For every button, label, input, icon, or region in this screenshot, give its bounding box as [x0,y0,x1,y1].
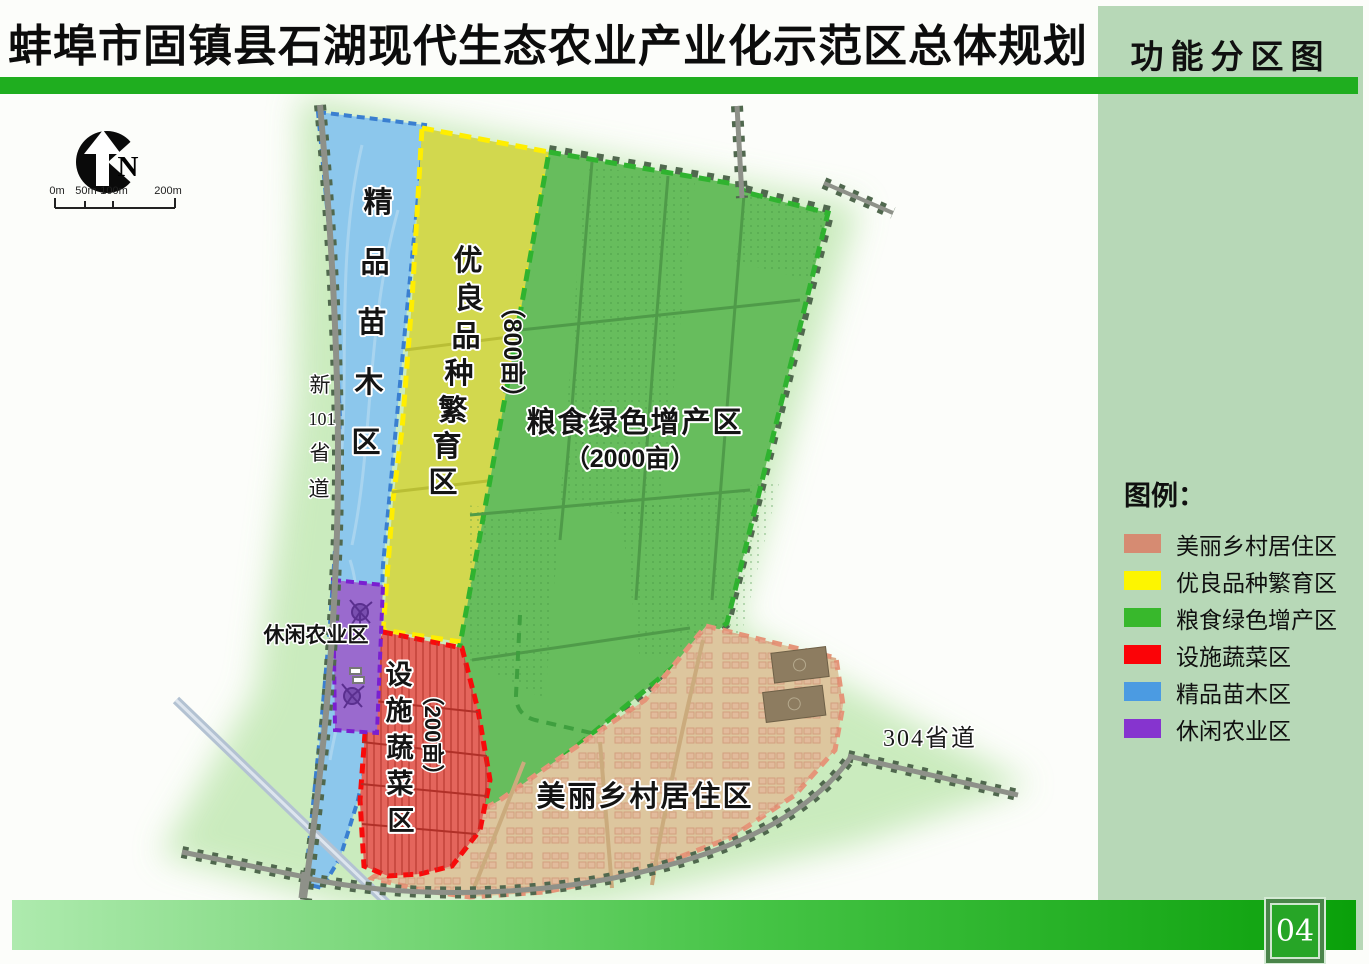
legend-swatch-grain [1124,608,1161,627]
scale-bar: 0m 50m 100m 200m [49,185,181,208]
footer-green-bar [12,900,1356,950]
legend-swatch-vegetable [1124,645,1161,664]
legend-item-seed: 优良品种繁育区 [1124,562,1337,599]
label-road101-2: 101 [309,409,336,429]
legend-label-vegetable: 设施蔬菜区 [1176,638,1291,672]
label-nursery-3: 苗 [357,306,386,339]
legend-item-village: 美丽乡村居住区 [1124,525,1337,562]
planning-poster-page: 蚌埠市固镇县石湖现代生态农业产业化示范区总体规划 功能分区图 图例： 美丽乡村居… [0,0,1369,964]
header-green-bar [0,77,1358,94]
scale-tick-0: 0m [49,185,64,197]
zone-leisure [333,580,383,733]
label-nursery-2: 品 [360,247,389,279]
legend-swatch-seed [1124,571,1161,590]
legend-label-grain: 粮食绿色增产区 [1176,601,1337,635]
map-sheet-title: 功能分区图 [1098,30,1363,78]
legend-label-village: 美丽乡村居住区 [1176,527,1337,561]
page-number: 04 [1266,899,1324,963]
label-grain-area: （2000亩） [565,444,696,473]
page-title: 蚌埠市固镇县石湖现代生态农业产业化示范区总体规划 [0,10,1096,74]
label-nursery-1: 精 [363,186,392,219]
label-road304: 304省道 [883,725,977,752]
label-seed-1: 优 [453,244,482,277]
compass-n-label: N [118,151,139,183]
label-leisure: 休闲农业区 [263,623,369,647]
legend-item-vegetable: 设施蔬菜区 [1124,636,1337,673]
legend-label-leisure: 休闲农业区 [1176,712,1291,746]
label-village: 美丽乡村居住区 [536,780,753,813]
legend-item-grain: 粮食绿色增产区 [1124,599,1337,636]
label-grain: 粮食绿色增产区 [526,405,743,439]
legend-swatch-leisure [1124,719,1161,738]
label-seed-area: （800亩） [498,294,527,411]
label-seed-4: 种 [444,357,473,390]
legend-title: 图例： [1124,474,1337,513]
scale-tick-100: 100m [100,185,128,197]
legend: 图例： 美丽乡村居住区 优良品种繁育区 粮食绿色增产区 设施蔬菜区 精品苗木区 [1124,474,1337,747]
label-seed-2: 良 [454,281,483,315]
legend-item-nursery: 精品苗木区 [1124,673,1337,710]
legend-item-leisure: 休闲农业区 [1124,710,1337,747]
legend-swatch-village [1124,534,1161,553]
label-vegetable-area: （200亩） [420,684,445,787]
sidebar: 功能分区图 图例： 美丽乡村居住区 优良品种繁育区 粮食绿色增产区 设施蔬菜区 … [1098,6,1363,950]
label-road101-1: 新 [310,373,331,397]
label-seed-3: 品 [451,321,480,353]
label-seed-5: 繁 [438,393,468,427]
label-nursery-4: 木 [353,366,383,399]
label-nursery-5: 区 [351,427,380,459]
label-road101-4: 道 [309,477,330,501]
legend-label-nursery: 精品苗木区 [1176,675,1291,709]
scale-tick-50: 50m [75,185,96,197]
scale-tick-200: 200m [154,185,182,197]
label-vegetable-5: 区 [388,806,415,836]
legend-swatch-nursery [1124,682,1161,701]
label-vegetable-3: 蔬 [387,733,414,763]
label-vegetable-1: 设 [386,660,413,690]
label-seed-6: 育 [432,429,461,463]
legend-label-seed: 优良品种繁育区 [1176,564,1337,598]
label-vegetable-4: 菜 [386,769,414,799]
label-vegetable-2: 施 [386,696,413,726]
label-road101-3: 省 [310,441,331,465]
label-seed-7: 区 [428,467,457,499]
